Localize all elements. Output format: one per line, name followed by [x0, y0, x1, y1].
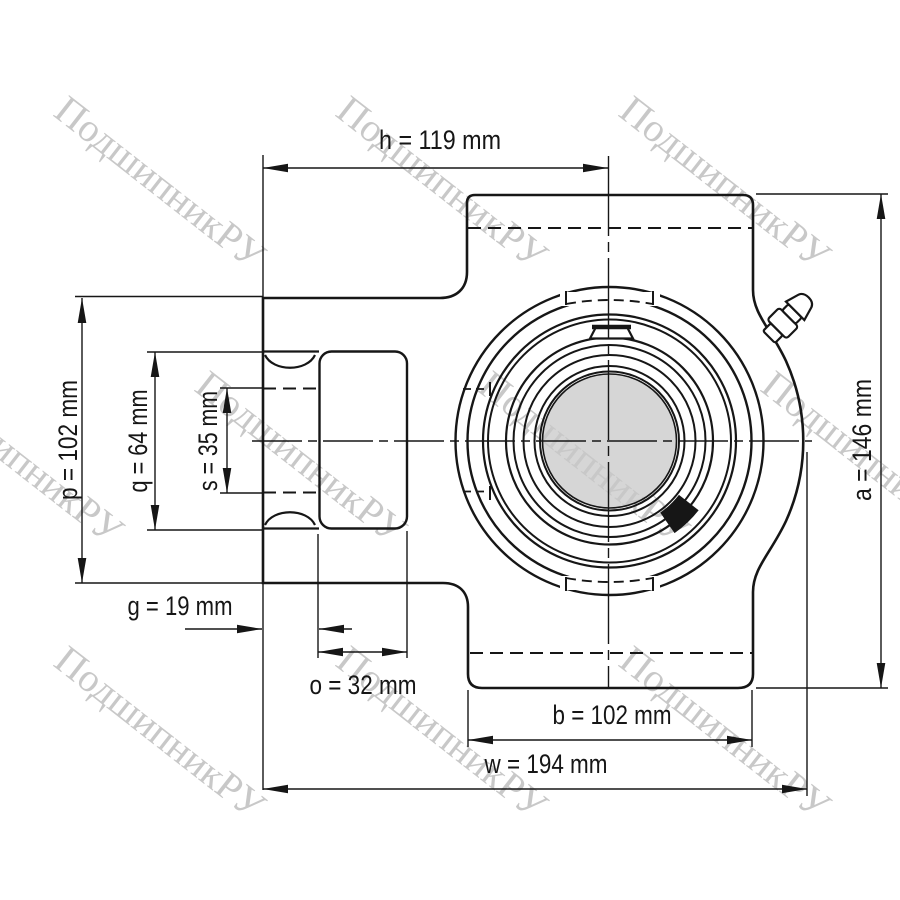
dimension-s-label: s = 35 mm: [193, 391, 223, 491]
dimension-w-label: w = 194 mm: [484, 749, 608, 779]
dimension-p-label: p = 102 mm: [53, 380, 83, 500]
dimension-h-label: h = 119 mm: [379, 125, 501, 155]
dimension-o-label: o = 32 mm: [310, 670, 417, 700]
locking-cam-wedge: [667, 503, 688, 523]
dimension-g-label: g = 19 mm: [128, 591, 233, 621]
dimension-b-label: b = 102 mm: [553, 700, 672, 730]
dimension-a-label: a = 146 mm: [847, 379, 877, 501]
bearing-technical-drawing: ПодшипникРУ ПодшипникРУ ПодшипникРУ Подш…: [0, 0, 900, 900]
set-screw: [590, 327, 633, 339]
dimension-q-label: q = 64 mm: [123, 390, 153, 493]
bearing-drawing-page: ПодшипникРУ ПодшипникРУ ПодшипникРУ Подш…: [0, 0, 900, 900]
